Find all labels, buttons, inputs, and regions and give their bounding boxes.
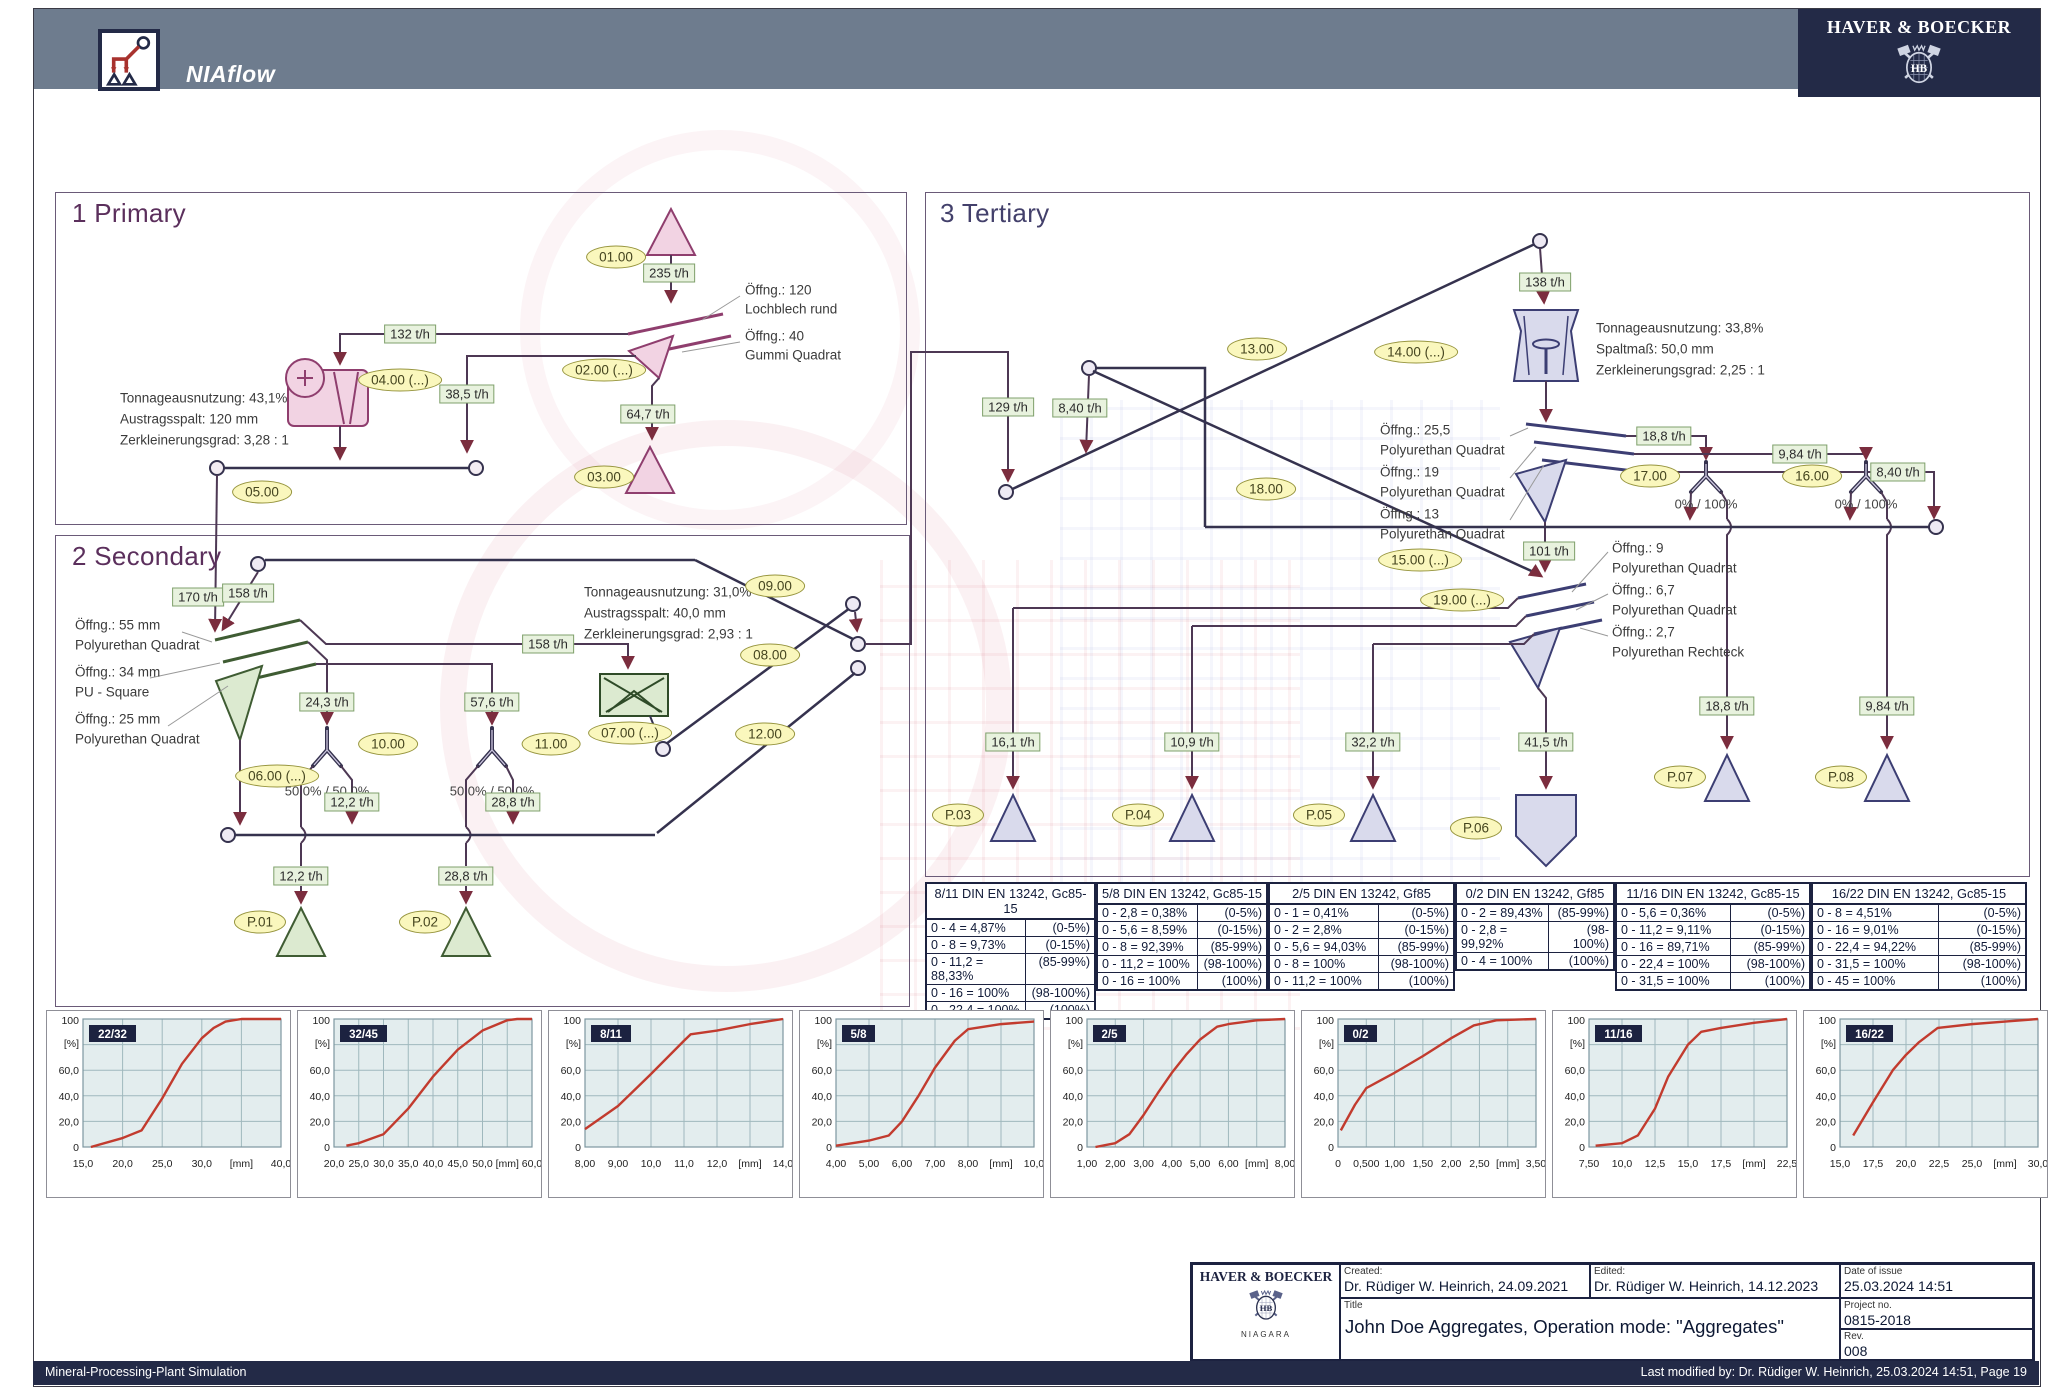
date-of-issue-value: 25.03.2024 14:51: [1841, 1278, 2032, 1294]
created-cell: Created: Dr. Rüdiger W. Heinrich, 24.09.…: [1340, 1264, 1590, 1298]
flow-label-984a[interactable]: 9,84 t/h: [1772, 445, 1827, 464]
svg-text:25,0: 25,0: [1962, 1158, 1983, 1170]
table-row: 0 - 16 = 89,71%(85-99%): [1617, 939, 1809, 956]
footer-right-text: Last modified by: Dr. Rüdiger W. Heinric…: [1641, 1365, 2027, 1379]
chart-svg: 16/22100[%]60,040,020,0015,017,520,022,5…: [1804, 1011, 2047, 1197]
stockpile-03-icon[interactable]: [626, 447, 674, 493]
svg-text:15,0: 15,0: [1830, 1158, 1851, 1170]
svg-text:17,5: 17,5: [1863, 1158, 1884, 1170]
rev-label: Rev.: [1841, 1330, 2032, 1343]
screen-06-icon[interactable]: [215, 620, 316, 740]
table-row: 0 - 22,4 = 94,22%(85-99%): [1813, 939, 2025, 956]
node-label-05[interactable]: 05.00: [232, 481, 292, 504]
flow-label-158b[interactable]: 158 t/h: [522, 635, 574, 654]
svg-text:30,0: 30,0: [2028, 1158, 2047, 1170]
svg-text:40,0: 40,0: [812, 1091, 833, 1103]
footer-bar: Mineral-Processing-Plant Simulation Last…: [33, 1361, 2039, 1385]
svg-text:60,0: 60,0: [59, 1065, 80, 1077]
svg-text:20,0: 20,0: [812, 1116, 833, 1128]
table-row: 0 - 8 = 9,73%(0-15%): [927, 937, 1094, 954]
screen-19-anno: Öffng.: 9: [1612, 541, 1664, 556]
svg-text:[mm]: [mm]: [989, 1158, 1012, 1170]
sieve-table-11-16: 11/16 DIN EN 13242, Gc85-150 - 5,6 = 0,3…: [1615, 882, 1811, 991]
rev-cell: Rev. 008: [1840, 1329, 2033, 1360]
flow-label-288a[interactable]: 28,8 t/h: [485, 793, 540, 812]
svg-text:0: 0: [73, 1142, 79, 1154]
svg-text:25,0: 25,0: [152, 1158, 173, 1170]
flow-label-161[interactable]: 16,1 t/h: [985, 733, 1040, 752]
edited-label: Edited:: [1591, 1265, 1839, 1278]
table-row: 0 - 31,5 = 100%(100%): [1617, 973, 1809, 989]
svg-text:20,0: 20,0: [1896, 1158, 1917, 1170]
flow-label-122b[interactable]: 12,2 t/h: [273, 867, 328, 886]
table-row: 0 - 5,6 = 8,59%(0-15%): [1098, 922, 1266, 939]
node-label-p08[interactable]: P.08: [1815, 766, 1867, 789]
svg-text:17,5: 17,5: [1711, 1158, 1732, 1170]
svg-text:6,00: 6,00: [892, 1158, 913, 1170]
brand-name: HAVER & BOECKER: [1193, 1269, 1339, 1285]
svg-text:30,0: 30,0: [373, 1158, 394, 1170]
svg-text:0: 0: [1328, 1142, 1334, 1154]
svg-text:0,500: 0,500: [1353, 1158, 1379, 1170]
svg-text:2,00: 2,00: [1441, 1158, 1462, 1170]
svg-text:5,00: 5,00: [859, 1158, 880, 1170]
chart-16-22: 16/22100[%]60,040,020,0015,017,520,022,5…: [1803, 1010, 2048, 1198]
svg-text:0/2: 0/2: [1353, 1029, 1369, 1041]
screen-06-anno: Öffng.: 34 mm: [75, 665, 160, 680]
flow-label-322[interactable]: 32,2 t/h: [1345, 733, 1400, 752]
created-label: Created:: [1341, 1265, 1589, 1278]
svg-text:0: 0: [1830, 1142, 1836, 1154]
project-no-label: Project no.: [1841, 1299, 2032, 1312]
node-label-08[interactable]: 08.00: [740, 644, 800, 667]
jaw-crusher-04-icon[interactable]: [286, 359, 368, 426]
svg-text:22/32: 22/32: [98, 1029, 127, 1041]
crusher-04-anno: Tonnageausnutzung: 43,1%: [120, 391, 287, 406]
svg-text:11,0: 11,0: [674, 1158, 694, 1170]
svg-text:[mm]: [mm]: [1496, 1158, 1519, 1170]
flow-label-122a[interactable]: 12,2 t/h: [324, 793, 379, 812]
cone-crusher-14-icon[interactable]: [1514, 310, 1578, 381]
footer-left-text: Mineral-Processing-Plant Simulation: [45, 1365, 246, 1379]
svg-text:[%]: [%]: [1319, 1038, 1334, 1050]
svg-text:25,0: 25,0: [349, 1158, 370, 1170]
crusher-07-anno: Zerkleinerungsgrad: 2,93 : 1: [584, 627, 753, 642]
splitter-10-icon[interactable]: [313, 728, 341, 766]
edited-value: Dr. Rüdiger W. Heinrich, 14.12.2023: [1591, 1278, 1839, 1294]
node-label-p01[interactable]: P.01: [234, 911, 286, 934]
svg-text:10,0: 10,0: [641, 1158, 662, 1170]
flow-label-109[interactable]: 10,9 t/h: [1164, 733, 1219, 752]
table-row: 0 - 2,8 = 99,92%(98-100%): [1457, 922, 1613, 953]
svg-text:[mm]: [mm]: [1245, 1158, 1268, 1170]
date-of-issue-cell: Date of issue 25.03.2024 14:51: [1840, 1264, 2033, 1298]
svg-text:0: 0: [1335, 1158, 1341, 1170]
svg-text:2/5: 2/5: [1102, 1029, 1119, 1041]
conveyor-collect-icon[interactable]: [1205, 520, 1943, 534]
screen-15-anno: Öffng.: 25,5: [1380, 423, 1450, 438]
svg-text:[%]: [%]: [1068, 1038, 1083, 1050]
node-label-p07[interactable]: P.07: [1654, 766, 1706, 789]
screen-02-anno: Öffng.: 120: [745, 283, 812, 298]
screen-15-anno: Polyurethan Quadrat: [1380, 485, 1505, 500]
svg-text:8,00: 8,00: [1275, 1158, 1294, 1170]
date-of-issue-label: Date of issue: [1841, 1265, 2032, 1278]
screen-06-anno: Polyurethan Quadrat: [75, 638, 200, 653]
svg-text:20,0: 20,0: [561, 1116, 582, 1128]
svg-text:1,50: 1,50: [1413, 1158, 1434, 1170]
svg-text:40,0: 40,0: [1063, 1091, 1084, 1103]
project-no-cell: Project no. 0815-2018: [1840, 1298, 2033, 1329]
node-label-14[interactable]: 14.00 (...): [1374, 341, 1458, 364]
screen-06-anno: Polyurethan Quadrat: [75, 732, 200, 747]
node-label-11[interactable]: 11.00: [522, 733, 581, 756]
svg-text:100: 100: [563, 1015, 581, 1027]
sieve-table-2-5: 2/5 DIN EN 13242, Gf850 - 1 = 0,41%(0-5%…: [1268, 882, 1455, 991]
node-label-12[interactable]: 12.00: [735, 723, 795, 746]
svg-text:1,00: 1,00: [1384, 1158, 1405, 1170]
node-label-p02[interactable]: P.02: [399, 911, 451, 934]
chart-svg: 11/16100[%]60,040,020,007,5010,012,515,0…: [1553, 1011, 1796, 1197]
node-label-07[interactable]: 07.00 (...): [588, 722, 672, 745]
svg-text:[%]: [%]: [817, 1038, 832, 1050]
chart-11-16: 11/16100[%]60,040,020,007,5010,012,515,0…: [1552, 1010, 1797, 1198]
svg-text:[mm]: [mm]: [1993, 1158, 2016, 1170]
svg-text:35,0: 35,0: [398, 1158, 419, 1170]
svg-text:0: 0: [1579, 1142, 1585, 1154]
table-header: 16/22 DIN EN 13242, Gc85-15: [1813, 884, 2025, 905]
screen-06-anno: PU - Square: [75, 685, 149, 700]
flow-label-132[interactable]: 132 t/h: [384, 325, 436, 344]
stockpile-p08-icon[interactable]: [1865, 755, 1909, 801]
table-row: 0 - 8 = 100%(98-100%): [1270, 956, 1453, 973]
stockpile-p01-icon[interactable]: [277, 908, 325, 956]
node-label-18[interactable]: 18.00: [1236, 478, 1296, 501]
table-row: 0 - 11,2 = 100%(98-100%): [1098, 956, 1266, 973]
table-row: 0 - 5,6 = 94,03%(85-99%): [1270, 939, 1453, 956]
svg-text:[%]: [%]: [1570, 1038, 1585, 1050]
screen-19-anno: Polyurethan Quadrat: [1612, 561, 1737, 576]
sieve-table-5-8: 5/8 DIN EN 13242, Gc85-150 - 2,8 = 0,38%…: [1096, 882, 1268, 991]
svg-text:8,00: 8,00: [575, 1158, 596, 1170]
table-row: 0 - 16 = 100%(98-100%): [927, 985, 1094, 1002]
screen-15-anno: Öffng.: 13: [1380, 507, 1439, 522]
svg-text:40,0: 40,0: [1565, 1091, 1586, 1103]
title-cell: Title John Doe Aggregates, Operation mod…: [1340, 1298, 1840, 1360]
crusher-04-anno: Austragsspalt: 120 mm: [120, 412, 258, 427]
flow-label-158a[interactable]: 158 t/h: [222, 584, 274, 603]
screen-19-icon[interactable]: [1510, 584, 1602, 688]
section-title-primary: 1 Primary: [72, 198, 186, 229]
table-row: 0 - 45 = 100%(100%): [1813, 973, 2025, 989]
chart-0-2: 0/2100[%]60,040,020,0000,5001,001,502,00…: [1301, 1010, 1546, 1198]
table-row: 0 - 4 = 100%(100%): [1457, 953, 1613, 969]
svg-text:100: 100: [312, 1015, 330, 1027]
screen-19-anno: Polyurethan Rechteck: [1612, 645, 1744, 660]
node-label-19[interactable]: 19.00 (...): [1420, 589, 1504, 612]
svg-text:60,0: 60,0: [1816, 1065, 1837, 1077]
svg-text:4,00: 4,00: [1162, 1158, 1183, 1170]
bin-p06-icon[interactable]: [1516, 795, 1576, 866]
svg-text:14,0: 14,0: [773, 1158, 792, 1170]
chart-8-11: 8/11100[%]60,040,020,008,009,0010,011,01…: [548, 1010, 793, 1198]
flow-label-243[interactable]: 24,3 t/h: [299, 693, 354, 712]
node-label-03[interactable]: 03.00: [574, 466, 634, 489]
flow-label-840b[interactable]: 8,40 t/h: [1870, 463, 1925, 482]
svg-text:100: 100: [1065, 1015, 1083, 1027]
svg-text:50,0: 50,0: [472, 1158, 493, 1170]
pulley-icon: [1082, 361, 1096, 375]
flow-label-101[interactable]: 101 t/h: [1523, 542, 1575, 561]
chart-svg: 2/5100[%]60,040,020,001,002,003,004,005,…: [1051, 1011, 1294, 1197]
svg-text:20,0: 20,0: [1063, 1116, 1084, 1128]
flow-label-576[interactable]: 57,6 t/h: [464, 693, 519, 712]
node-label-p04[interactable]: P.04: [1112, 804, 1164, 827]
chart-32-45: 32/45100[%]60,040,020,0020,025,030,035,0…: [297, 1010, 542, 1198]
table-row: 0 - 1 = 0,41%(0-5%): [1270, 905, 1453, 922]
sieve-tables: 8/11 DIN EN 13242, Gc85-150 - 4 = 4,87%(…: [925, 882, 2027, 1020]
flow-label-385[interactable]: 38,5 t/h: [439, 385, 494, 404]
table-row: 0 - 5,6 = 0,36%(0-5%): [1617, 905, 1809, 922]
svg-text:5/8: 5/8: [851, 1029, 868, 1041]
svg-text:[%]: [%]: [315, 1038, 330, 1050]
node-label-04[interactable]: 04.00 (...): [358, 369, 442, 392]
table-row: 0 - 22,4 = 100%(98-100%): [1617, 956, 1809, 973]
sieve-table-16-22: 16/22 DIN EN 13242, Gc85-150 - 8 = 4,51%…: [1811, 882, 2027, 991]
splitter-11-icon[interactable]: [478, 728, 506, 766]
svg-text:0: 0: [826, 1142, 832, 1154]
flow-label-138[interactable]: 138 t/h: [1519, 273, 1571, 292]
svg-text:12,0: 12,0: [707, 1158, 728, 1170]
impact-crusher-07-icon[interactable]: [600, 674, 668, 716]
svg-text:40,0: 40,0: [1314, 1091, 1335, 1103]
crusher-07-anno: Austragsspalt: 40,0 mm: [584, 606, 726, 621]
svg-text:60,0: 60,0: [561, 1065, 582, 1077]
table-row: 0 - 16 = 100%(100%): [1098, 973, 1266, 989]
chart-svg: 5/8100[%]60,040,020,004,005,006,007,008,…: [800, 1011, 1043, 1197]
chart-svg: 32/45100[%]60,040,020,0020,025,030,035,0…: [298, 1011, 541, 1197]
svg-text:0: 0: [1077, 1142, 1083, 1154]
node-label-16[interactable]: 16.00: [1782, 465, 1842, 488]
haver-boecker-emblem-icon: HB: [1246, 1285, 1286, 1325]
svg-text:20,0: 20,0: [59, 1116, 80, 1128]
svg-text:60,0: 60,0: [1063, 1065, 1084, 1077]
rev-value: 008: [1841, 1343, 2032, 1359]
screen-06-anno: Öffng.: 25 mm: [75, 712, 160, 727]
stockpile-p04-icon[interactable]: [1170, 795, 1214, 841]
screen-19-anno: Öffng.: 2,7: [1612, 625, 1675, 640]
chart-2-5: 2/5100[%]60,040,020,001,002,003,004,005,…: [1050, 1010, 1295, 1198]
flow-label-840a[interactable]: 8,40 t/h: [1052, 399, 1107, 418]
flow-label-129[interactable]: 129 t/h: [982, 398, 1034, 417]
node-label-p03[interactable]: P.03: [932, 804, 984, 827]
svg-text:20,0: 20,0: [324, 1158, 345, 1170]
svg-text:9,00: 9,00: [608, 1158, 629, 1170]
crusher-14-anno: Zerkleinerungsgrad: 2,25 : 1: [1596, 363, 1765, 378]
node-label-p05[interactable]: P.05: [1293, 804, 1345, 827]
svg-text:100: 100: [1818, 1015, 1836, 1027]
flow-label-188b[interactable]: 18,8 t/h: [1699, 697, 1754, 716]
node-label-17[interactable]: 17.00: [1620, 465, 1680, 488]
svg-text:7,00: 7,00: [925, 1158, 946, 1170]
svg-text:40,0: 40,0: [310, 1091, 331, 1103]
table-row: 0 - 4 = 4,87%(0-5%): [927, 920, 1094, 937]
svg-text:HB: HB: [1260, 1303, 1273, 1313]
screen-15-anno: Öffng.: 19: [1380, 465, 1439, 480]
flow-label-415[interactable]: 41,5 t/h: [1518, 733, 1573, 752]
table-row: 0 - 11,2 = 88,33%(85-99%): [927, 954, 1094, 985]
svg-text:0: 0: [324, 1142, 330, 1154]
conveyor-18-icon[interactable]: [1093, 371, 1538, 574]
table-header: 8/11 DIN EN 13242, Gc85-15: [927, 884, 1094, 920]
brand-sub: NIAGARA: [1193, 1330, 1339, 1339]
svg-text:[mm]: [mm]: [1742, 1158, 1765, 1170]
table-row: 0 - 11,2 = 9,11%(0-15%): [1617, 922, 1809, 939]
svg-text:[mm]: [mm]: [496, 1158, 519, 1170]
section-title-tertiary: 3 Tertiary: [940, 198, 1049, 229]
table-header: 2/5 DIN EN 13242, Gf85: [1270, 884, 1453, 905]
chart-svg: 22/32100[%]60,040,020,0015,020,025,030,0…: [47, 1011, 290, 1197]
screen-02-anno: Öffng.: 40: [745, 329, 804, 344]
sieve-table-0-2: 0/2 DIN EN 13242, Gf850 - 2 = 89,43%(85-…: [1455, 882, 1615, 971]
svg-text:20,0: 20,0: [1314, 1116, 1335, 1128]
svg-text:40,0: 40,0: [423, 1158, 444, 1170]
table-header: 0/2 DIN EN 13242, Gf85: [1457, 884, 1613, 905]
svg-text:100: 100: [61, 1015, 79, 1027]
svg-text:7,50: 7,50: [1579, 1158, 1600, 1170]
project-no-value: 0815-2018: [1841, 1312, 2032, 1328]
svg-text:15,0: 15,0: [1678, 1158, 1699, 1170]
svg-text:100: 100: [814, 1015, 832, 1027]
node-label-15[interactable]: 15.00 (...): [1378, 549, 1462, 572]
node-label-01[interactable]: 01.00: [586, 246, 646, 269]
title-block: HAVER & BOECKER HB NIAGARA Created: Dr. …: [1190, 1262, 2035, 1362]
svg-text:20,0: 20,0: [112, 1158, 133, 1170]
screen-19-anno: Öffng.: 6,7: [1612, 583, 1675, 598]
crusher-14-anno: Tonnageausnutzung: 33,8%: [1596, 321, 1763, 336]
chart-22-32: 22/32100[%]60,040,020,0015,020,025,030,0…: [46, 1010, 291, 1198]
svg-text:2,50: 2,50: [1469, 1158, 1490, 1170]
svg-text:[mm]: [mm]: [738, 1158, 761, 1170]
svg-text:30,0: 30,0: [192, 1158, 213, 1170]
svg-text:[%]: [%]: [566, 1038, 581, 1050]
svg-text:40,0: 40,0: [1816, 1091, 1837, 1103]
svg-text:60,0: 60,0: [1314, 1065, 1335, 1077]
screen-06-anno: Öffng.: 55 mm: [75, 618, 160, 633]
svg-text:8/11: 8/11: [600, 1029, 622, 1041]
edited-cell: Edited: Dr. Rüdiger W. Heinrich, 14.12.2…: [1590, 1264, 1840, 1298]
distribution-charts: 22/32100[%]60,040,020,0015,020,025,030,0…: [46, 1010, 2048, 1198]
page: NIAflow HAVER & BOECKER HB 1 Primary 2 S…: [0, 0, 2048, 1388]
flow-label-984b[interactable]: 9,84 t/h: [1859, 697, 1914, 716]
crusher-04-anno: Zerkleinerungsgrad: 3,28 : 1: [120, 433, 289, 448]
svg-text:60,0: 60,0: [1565, 1065, 1586, 1077]
flow-label-647[interactable]: 64,7 t/h: [620, 405, 675, 424]
flow-label-170[interactable]: 170 t/h: [172, 588, 224, 607]
svg-text:10,0: 10,0: [1024, 1158, 1043, 1170]
sieve-table-8-11: 8/11 DIN EN 13242, Gc85-150 - 4 = 4,87%(…: [925, 882, 1096, 1020]
flow-label-288b[interactable]: 28,8 t/h: [438, 867, 493, 886]
svg-text:2,00: 2,00: [1105, 1158, 1126, 1170]
svg-text:40,0: 40,0: [59, 1091, 80, 1103]
node-label-02[interactable]: 02.00 (...): [562, 359, 646, 382]
table-row: 0 - 31,5 = 100%(98-100%): [1813, 956, 2025, 973]
stockpile-p07-icon[interactable]: [1705, 755, 1749, 801]
svg-text:20,0: 20,0: [310, 1116, 331, 1128]
crusher-14-anno: Spaltmaß: 50,0 mm: [1596, 342, 1714, 357]
table-row: 0 - 11,2 = 100%(100%): [1270, 973, 1453, 989]
svg-text:16/22: 16/22: [1855, 1029, 1884, 1041]
flow-label-188a[interactable]: 18,8 t/h: [1636, 427, 1691, 446]
chart-5-8: 5/8100[%]60,040,020,004,005,006,007,008,…: [799, 1010, 1044, 1198]
screen-02-anno: Lochblech rund: [745, 302, 837, 317]
feed-hopper-01-icon[interactable]: [647, 209, 695, 255]
conveyor-05-icon[interactable]: [210, 461, 483, 475]
table-row: 0 - 8 = 92,39%(85-99%): [1098, 939, 1266, 956]
table-row: 0 - 2 = 89,43%(85-99%): [1457, 905, 1613, 922]
title-label: Title: [1341, 1299, 1839, 1312]
screen-19-anno: Polyurethan Quadrat: [1612, 603, 1737, 618]
svg-text:11/16: 11/16: [1604, 1029, 1632, 1041]
created-value: Dr. Rüdiger W. Heinrich, 24.09.2021: [1341, 1278, 1589, 1294]
svg-text:3,50: 3,50: [1526, 1158, 1545, 1170]
svg-text:12,5: 12,5: [1645, 1158, 1666, 1170]
table-row: 0 - 2 = 2,8%(0-15%): [1270, 922, 1453, 939]
svg-text:32/45: 32/45: [349, 1029, 378, 1041]
svg-text:45,0: 45,0: [448, 1158, 469, 1170]
svg-text:20,0: 20,0: [1565, 1116, 1586, 1128]
screen-15-anno: Polyurethan Quadrat: [1380, 527, 1505, 542]
svg-text:8,00: 8,00: [958, 1158, 979, 1170]
table-header: 5/8 DIN EN 13242, Gc85-15: [1098, 884, 1266, 905]
svg-text:[%]: [%]: [64, 1038, 79, 1050]
svg-text:1,00: 1,00: [1077, 1158, 1098, 1170]
table-row: 0 - 2,8 = 0,38%(0-5%): [1098, 905, 1266, 922]
chart-svg: 8/11100[%]60,040,020,008,009,0010,011,01…: [549, 1011, 792, 1197]
stockpile-p03-icon[interactable]: [991, 795, 1035, 841]
node-label-10[interactable]: 10.00: [358, 733, 418, 756]
svg-text:[%]: [%]: [1821, 1038, 1836, 1050]
svg-text:20,0: 20,0: [1816, 1116, 1837, 1128]
svg-text:40,0: 40,0: [271, 1158, 290, 1170]
svg-text:100: 100: [1567, 1015, 1585, 1027]
section-title-secondary: 2 Secondary: [72, 541, 221, 572]
crusher-07-anno: Tonnageausnutzung: 31,0%: [584, 585, 751, 600]
svg-text:15,0: 15,0: [73, 1158, 94, 1170]
node-label-13[interactable]: 13.00: [1227, 338, 1287, 361]
title-block-logo: HAVER & BOECKER HB NIAGARA: [1192, 1264, 1340, 1360]
stockpile-p02-icon[interactable]: [442, 908, 490, 956]
svg-text:4,00: 4,00: [826, 1158, 847, 1170]
svg-text:0: 0: [575, 1142, 581, 1154]
table-row: 0 - 8 = 4,51%(0-5%): [1813, 905, 2025, 922]
svg-text:6,00: 6,00: [1218, 1158, 1239, 1170]
node-label-09[interactable]: 09.00: [745, 575, 805, 598]
split-16-ratio: 0% / 100%: [1835, 497, 1898, 512]
svg-text:100: 100: [1316, 1015, 1334, 1027]
title-value: John Doe Aggregates, Operation mode: "Ag…: [1341, 1312, 1839, 1342]
flow-label-235[interactable]: 235 t/h: [643, 264, 695, 283]
svg-text:22,5: 22,5: [1929, 1158, 1950, 1170]
screen-02-anno: Gummi Quadrat: [745, 348, 841, 363]
table-row: 0 - 16 = 9,01%(0-15%): [1813, 922, 2025, 939]
stockpile-p05-icon[interactable]: [1351, 795, 1395, 841]
table-header: 11/16 DIN EN 13242, Gc85-15: [1617, 884, 1809, 905]
splitter-17-icon[interactable]: [1691, 462, 1721, 492]
node-label-p06[interactable]: P.06: [1450, 817, 1502, 840]
svg-text:22,5: 22,5: [1777, 1158, 1796, 1170]
svg-text:60,0: 60,0: [522, 1158, 541, 1170]
